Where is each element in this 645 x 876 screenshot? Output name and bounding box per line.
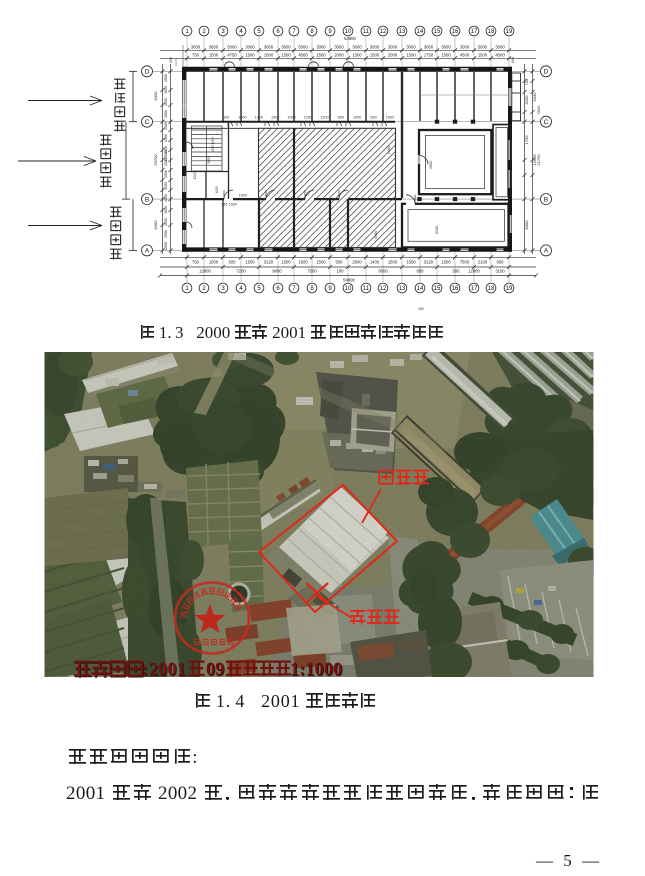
svg-text:4: 4 (239, 29, 243, 35)
svg-text:5: 5 (257, 286, 261, 292)
svg-text:B: B (544, 196, 548, 203)
svg-text:1500: 1500 (164, 170, 168, 178)
svg-text:1500: 1500 (164, 206, 168, 214)
svg-text:10: 10 (345, 286, 352, 292)
svg-text:3000: 3000 (406, 45, 416, 50)
svg-text:1500: 1500 (287, 116, 295, 120)
svg-text:2001: 2001 (149, 660, 186, 680)
svg-text:5000: 5000 (227, 45, 237, 50)
svg-text:3000: 3000 (352, 45, 362, 50)
svg-text:14: 14 (417, 29, 424, 35)
svg-text:3: 3 (221, 29, 225, 35)
svg-text:A: A (145, 248, 150, 255)
svg-text:12800: 12800 (468, 268, 480, 273)
svg-text:1500: 1500 (370, 53, 380, 58)
svg-text:19: 19 (506, 29, 513, 35)
svg-text:54800: 54800 (344, 36, 356, 41)
svg-text:18: 18 (488, 29, 495, 35)
svg-text:1500: 1500 (164, 122, 168, 130)
svg-text:1500: 1500 (164, 218, 168, 226)
svg-text:12: 12 (380, 286, 387, 292)
svg-text:C: C (544, 119, 549, 126)
svg-text:1400: 1400 (370, 259, 380, 264)
svg-text:1750: 1750 (424, 53, 434, 58)
svg-text:1500: 1500 (316, 259, 326, 264)
svg-text:A: A (544, 248, 549, 255)
svg-text:17: 17 (471, 29, 478, 35)
svg-text:8400: 8400 (153, 91, 158, 101)
svg-text:6: 6 (276, 29, 280, 35)
svg-text:600: 600 (169, 57, 173, 63)
svg-text:2: 2 (202, 286, 206, 292)
svg-text:700: 700 (524, 78, 529, 85)
svg-text:8: 8 (310, 29, 314, 35)
svg-text:3000: 3000 (441, 45, 451, 50)
svg-text:1500: 1500 (164, 134, 168, 142)
svg-text:1: 1 (185, 286, 189, 292)
svg-text:3000: 3000 (424, 45, 434, 50)
svg-text:1700: 1700 (524, 135, 529, 145)
svg-text:850: 850 (370, 116, 376, 120)
svg-text:6: 6 (276, 286, 280, 292)
svg-text:1500: 1500 (386, 116, 394, 120)
svg-text:1500: 1500 (352, 53, 362, 58)
svg-text:100: 100 (337, 268, 345, 273)
svg-text:9000: 9000 (272, 268, 282, 273)
svg-text:850: 850 (338, 116, 344, 120)
svg-text:1500: 1500 (298, 259, 308, 264)
svg-text:3000: 3000 (281, 45, 291, 50)
svg-text:500: 500 (229, 259, 237, 264)
svg-text:600: 600 (511, 57, 515, 63)
svg-text:54800: 54800 (343, 277, 355, 282)
svg-text:5200: 5200 (435, 226, 439, 234)
svg-text:D: D (544, 69, 549, 76)
svg-text:1500: 1500 (164, 194, 168, 202)
svg-text:2000: 2000 (388, 53, 398, 58)
svg-text:1500: 1500 (388, 259, 398, 264)
svg-text:1500: 1500 (478, 53, 488, 58)
svg-text:1500: 1500 (271, 116, 279, 120)
svg-text:3000: 3000 (264, 45, 274, 50)
svg-text:3000: 3000 (316, 45, 326, 50)
svg-text:1210: 1210 (193, 172, 197, 179)
svg-text:3000: 3000 (495, 45, 505, 50)
svg-text:350 1500: 350 1500 (221, 203, 237, 207)
svg-text:3000: 3000 (460, 45, 470, 50)
svg-text:2: 2 (202, 29, 206, 35)
svg-text:4750: 4750 (227, 53, 237, 58)
svg-text:500: 500 (336, 259, 344, 264)
svg-text:1:1000: 1:1000 (290, 660, 342, 680)
svg-text:15: 15 (434, 29, 441, 35)
svg-text:1500: 1500 (164, 110, 168, 118)
svg-text:7: 7 (292, 286, 296, 292)
svg-text:17: 17 (471, 286, 478, 292)
svg-text:7500: 7500 (307, 268, 317, 273)
svg-text:3000: 3000 (334, 45, 344, 50)
svg-text:12: 12 (380, 29, 387, 35)
svg-text:4500: 4500 (537, 106, 541, 114)
svg-text:5000: 5000 (478, 45, 488, 50)
svg-text:3000: 3000 (370, 45, 380, 50)
svg-text:1500: 1500 (441, 259, 451, 264)
svg-text:1500: 1500 (239, 194, 247, 198)
svg-text:3000: 3000 (191, 45, 201, 50)
svg-text:850: 850 (417, 268, 425, 273)
svg-text:12800: 12800 (199, 268, 211, 273)
svg-text:9: 9 (328, 29, 332, 35)
svg-text:16: 16 (452, 286, 459, 292)
svg-text:14: 14 (417, 286, 424, 292)
svg-text:1500: 1500 (209, 259, 219, 264)
svg-text:18: 18 (488, 286, 495, 292)
svg-text:2100: 2100 (478, 259, 488, 264)
svg-text:7500: 7500 (460, 259, 470, 264)
svg-text:750: 750 (192, 53, 200, 58)
svg-text:1500: 1500 (238, 116, 246, 120)
svg-text:1500: 1500 (281, 53, 291, 58)
svg-text:3000: 3000 (245, 45, 255, 50)
svg-text:21700: 21700 (536, 154, 541, 166)
svg-text:1500: 1500 (406, 259, 416, 264)
svg-text:16: 16 (452, 29, 459, 35)
svg-text:1500: 1500 (264, 53, 274, 58)
svg-text:15: 15 (434, 286, 441, 292)
svg-text:4500: 4500 (298, 53, 308, 58)
svg-text:3800: 3800 (209, 45, 219, 50)
svg-text:C: C (145, 119, 150, 126)
svg-text:3850: 3850 (207, 156, 211, 163)
svg-text:1500: 1500 (245, 53, 255, 58)
svg-text:3120: 3120 (264, 259, 274, 264)
svg-text:1500: 1500 (164, 230, 168, 238)
svg-text:1500: 1500 (209, 53, 219, 58)
svg-text:1500: 1500 (316, 53, 326, 58)
svg-text:19: 19 (506, 286, 513, 292)
svg-text:9: 9 (328, 286, 332, 292)
svg-text:1500: 1500 (353, 116, 361, 120)
svg-text:1250: 1250 (304, 116, 312, 120)
svg-text:8400: 8400 (524, 220, 529, 230)
svg-text:4: 4 (239, 286, 243, 292)
svg-text:5000: 5000 (298, 45, 308, 50)
svg-text:1500: 1500 (406, 53, 416, 58)
svg-text:1500: 1500 (164, 98, 168, 106)
svg-text:3120: 3120 (424, 259, 434, 264)
svg-text:1500: 1500 (281, 259, 291, 264)
svg-text:1500: 1500 (164, 242, 168, 250)
svg-text:4500: 4500 (429, 161, 433, 169)
svg-text:4000: 4000 (215, 186, 219, 193)
svg-text:B: B (145, 196, 149, 203)
svg-text:3000: 3000 (388, 45, 398, 50)
svg-text:1: 1 (185, 29, 189, 35)
svg-text:1500: 1500 (164, 86, 168, 94)
svg-text:9000: 9000 (378, 268, 388, 273)
svg-text:6430: 6430 (532, 92, 537, 102)
svg-text:400: 400 (418, 307, 424, 311)
svg-text:4200: 4200 (524, 95, 529, 105)
svg-text:5450: 5450 (374, 231, 378, 239)
svg-text:1500: 1500 (164, 146, 168, 154)
svg-text:500: 500 (453, 268, 461, 273)
svg-text:D: D (145, 69, 150, 76)
svg-text:1500: 1500 (441, 53, 451, 58)
svg-text:500: 500 (223, 116, 229, 120)
svg-text:1500: 1500 (245, 259, 255, 264)
svg-text:900: 900 (497, 259, 505, 264)
svg-text:13: 13 (399, 29, 406, 35)
svg-text:7: 7 (292, 29, 296, 35)
svg-text:29700: 29700 (153, 154, 158, 166)
svg-text:1300: 1300 (255, 116, 263, 120)
svg-text::: : (142, 660, 148, 680)
svg-text:2000: 2000 (334, 53, 344, 58)
svg-text:10: 10 (345, 29, 352, 35)
svg-text:4500: 4500 (460, 53, 470, 58)
svg-text:11: 11 (363, 29, 370, 35)
svg-text:8: 8 (310, 286, 314, 292)
svg-text:1500: 1500 (164, 158, 168, 166)
svg-text:7200: 7200 (236, 268, 246, 273)
svg-text:5: 5 (257, 29, 261, 35)
svg-text:13: 13 (399, 286, 406, 292)
svg-text:1300 1450: 1300 1450 (211, 137, 215, 152)
svg-text:11: 11 (363, 286, 370, 292)
svg-text:3100: 3100 (495, 268, 505, 273)
svg-text:2600: 2600 (352, 259, 362, 264)
svg-text:4500: 4500 (495, 53, 505, 58)
svg-text:750: 750 (192, 259, 200, 264)
svg-text:1500: 1500 (164, 182, 168, 190)
svg-text:8400: 8400 (153, 220, 158, 230)
svg-text:1500: 1500 (164, 74, 168, 82)
svg-text:3: 3 (221, 286, 225, 292)
svg-text:09: 09 (206, 660, 225, 680)
svg-text:2400: 2400 (387, 146, 391, 154)
svg-text:1200: 1200 (320, 116, 328, 120)
